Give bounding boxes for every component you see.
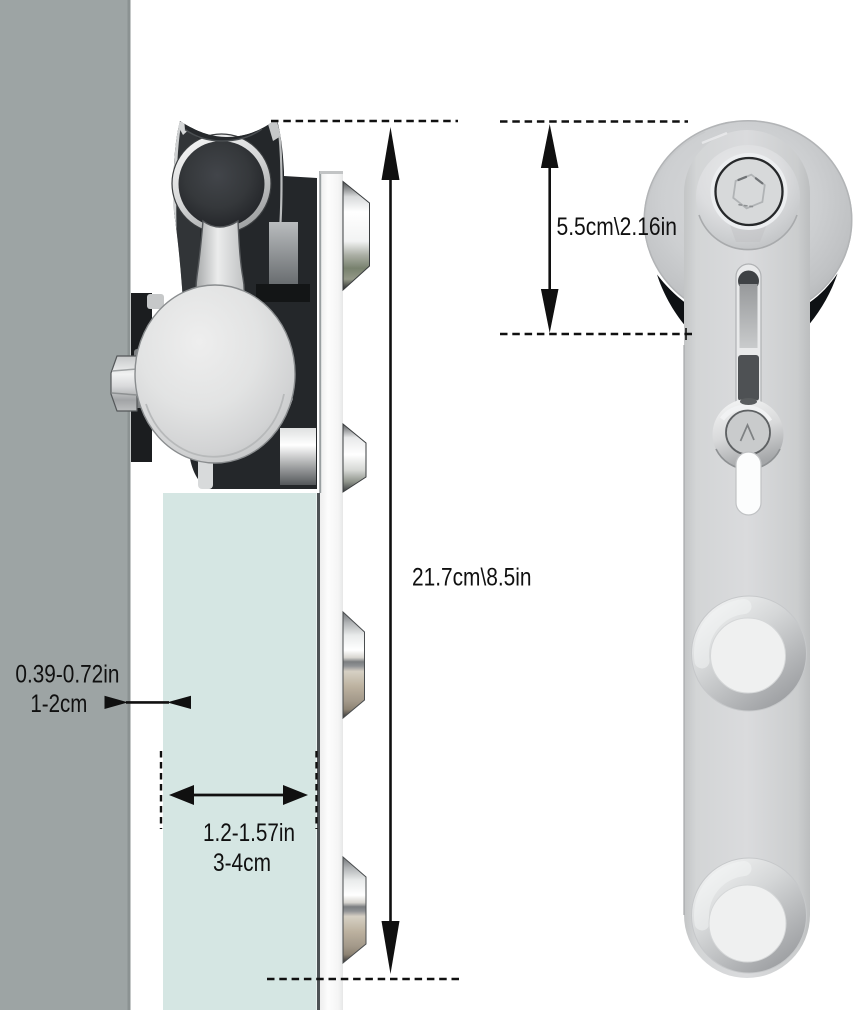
svg-text:5.5cm\2.16in: 5.5cm\2.16in	[557, 213, 678, 241]
svg-text:1-2cm: 1-2cm	[30, 690, 87, 718]
svg-text:1.2-1.57in: 1.2-1.57in	[203, 819, 295, 847]
svg-text:0.39-0.72in: 0.39-0.72in	[15, 661, 119, 689]
svg-text:21.7cm\8.5in: 21.7cm\8.5in	[412, 564, 532, 592]
svg-text:3-4cm: 3-4cm	[213, 849, 271, 877]
